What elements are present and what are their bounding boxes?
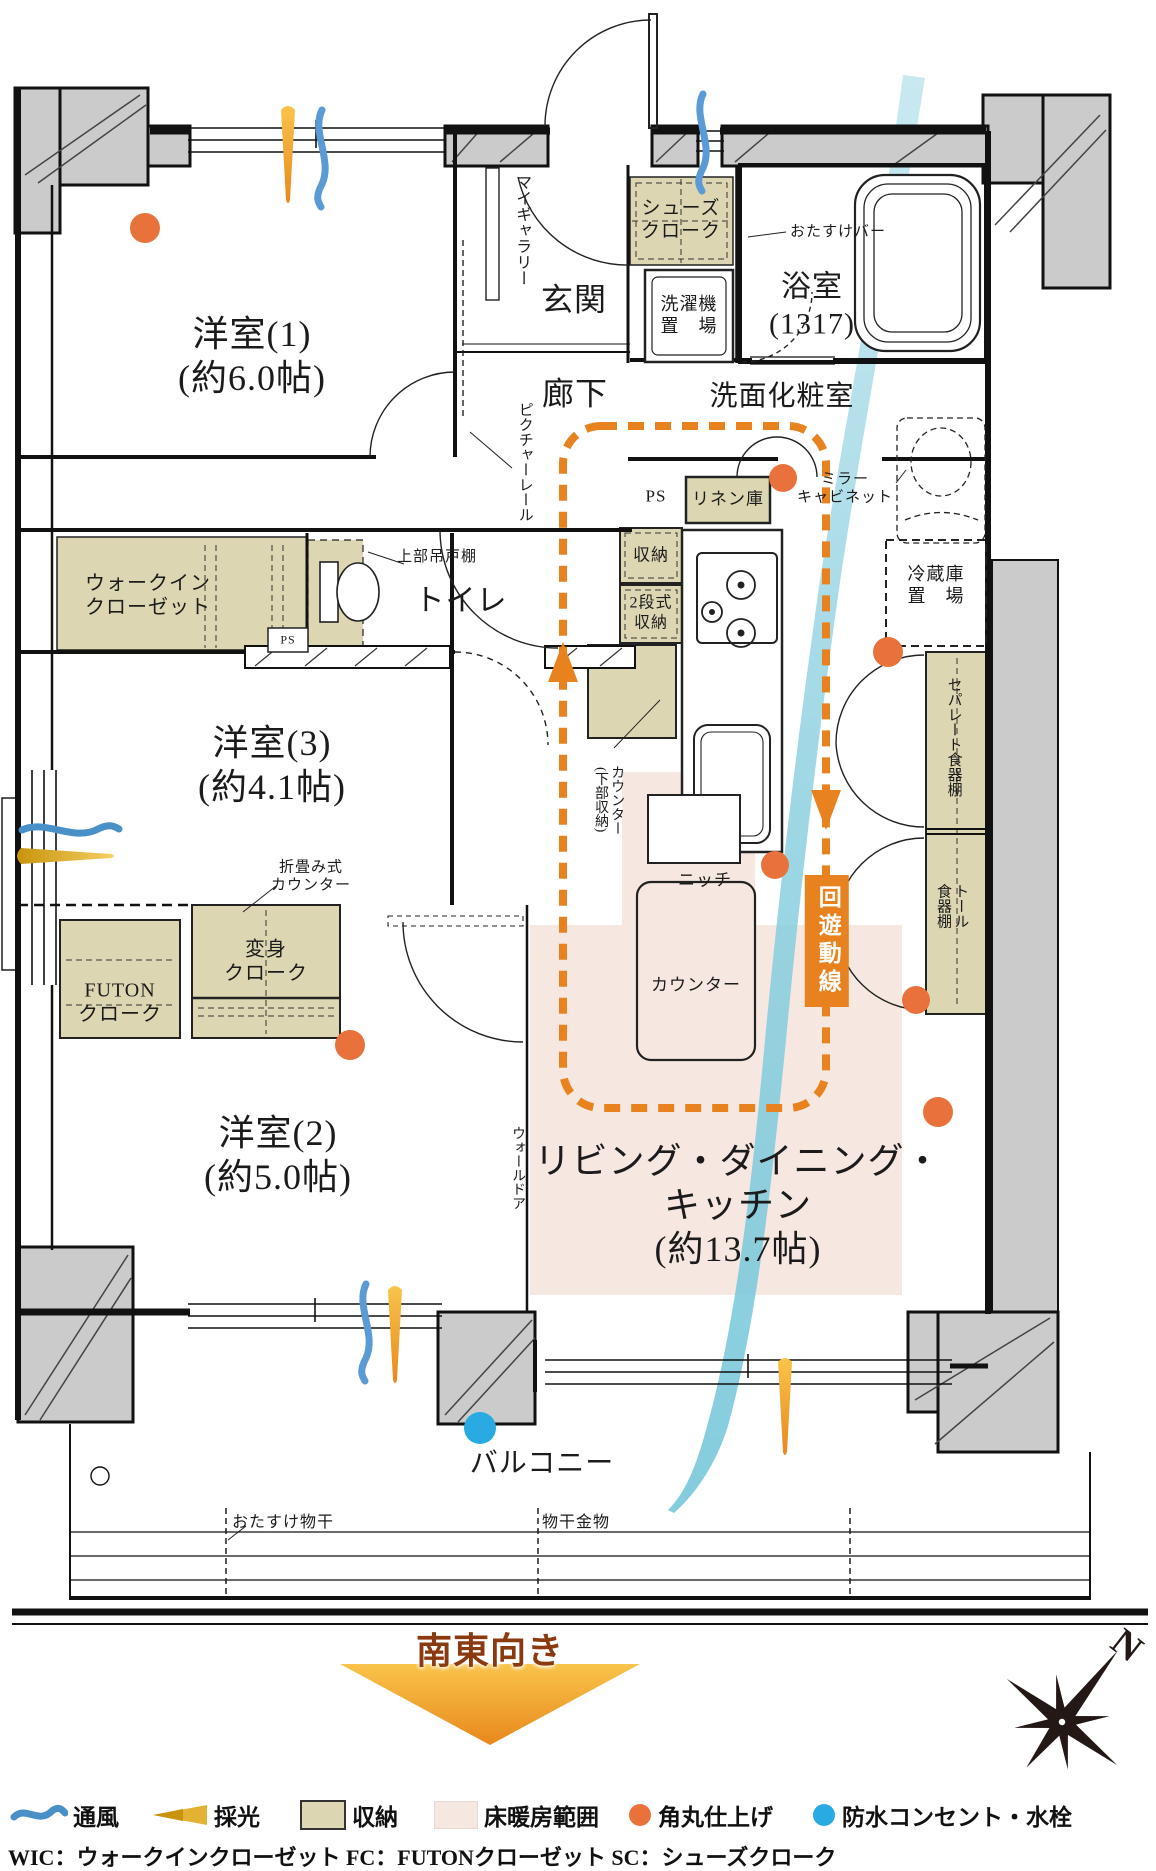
legend-item-rounded-corner: 角丸仕上げ	[629, 1798, 773, 1832]
storage-areas	[57, 177, 988, 1038]
legend-item-breeze: 通風	[10, 1798, 119, 1832]
legend-label: 収納	[352, 1798, 398, 1832]
daylight-arrow-icon	[153, 1804, 209, 1826]
floor-heating-swatch-icon	[434, 1801, 478, 1829]
legend-label: 採光	[214, 1798, 260, 1832]
abbreviation-note: WIC：ウォークインクローゼット FC：FUTONクローゼット SC：シューズク…	[8, 1840, 836, 1871]
rounded-corner-dot-icon	[629, 1804, 651, 1826]
legend-item-waterproof: 防水コンセント・水栓	[813, 1798, 1072, 1832]
legend-label: 通風	[73, 1798, 119, 1832]
legend-item-daylight: 採光	[153, 1798, 260, 1832]
legend-label: 角丸仕上げ	[658, 1798, 773, 1832]
legend-label: 床暖房範囲	[484, 1798, 599, 1832]
waterproof-outlet-dot-icon	[813, 1804, 835, 1826]
balcony	[12, 1424, 1148, 1624]
southeast-direction-arrow	[340, 1664, 640, 1745]
compass-icon	[965, 1606, 1156, 1818]
legend: 通風 採光 収納 床暖房範囲 角丸仕上げ 防水コンセント・水栓	[10, 1798, 1072, 1832]
breeze-wave-icon	[10, 1801, 68, 1829]
floor-plan-drawing	[0, 0, 1156, 1871]
floor-plan-page: 洋室(1) (約6.0帖)洋室(3) (約4.1帖)洋室(2) (約5.0帖)リ…	[0, 0, 1156, 1871]
legend-label: 防水コンセント・水栓	[842, 1798, 1072, 1832]
storage-swatch-icon	[300, 1800, 346, 1830]
legend-item-floor-heating: 床暖房範囲	[434, 1798, 599, 1832]
legend-item-storage: 収納	[300, 1798, 398, 1832]
waterproof-outlet-dot	[464, 1412, 496, 1444]
